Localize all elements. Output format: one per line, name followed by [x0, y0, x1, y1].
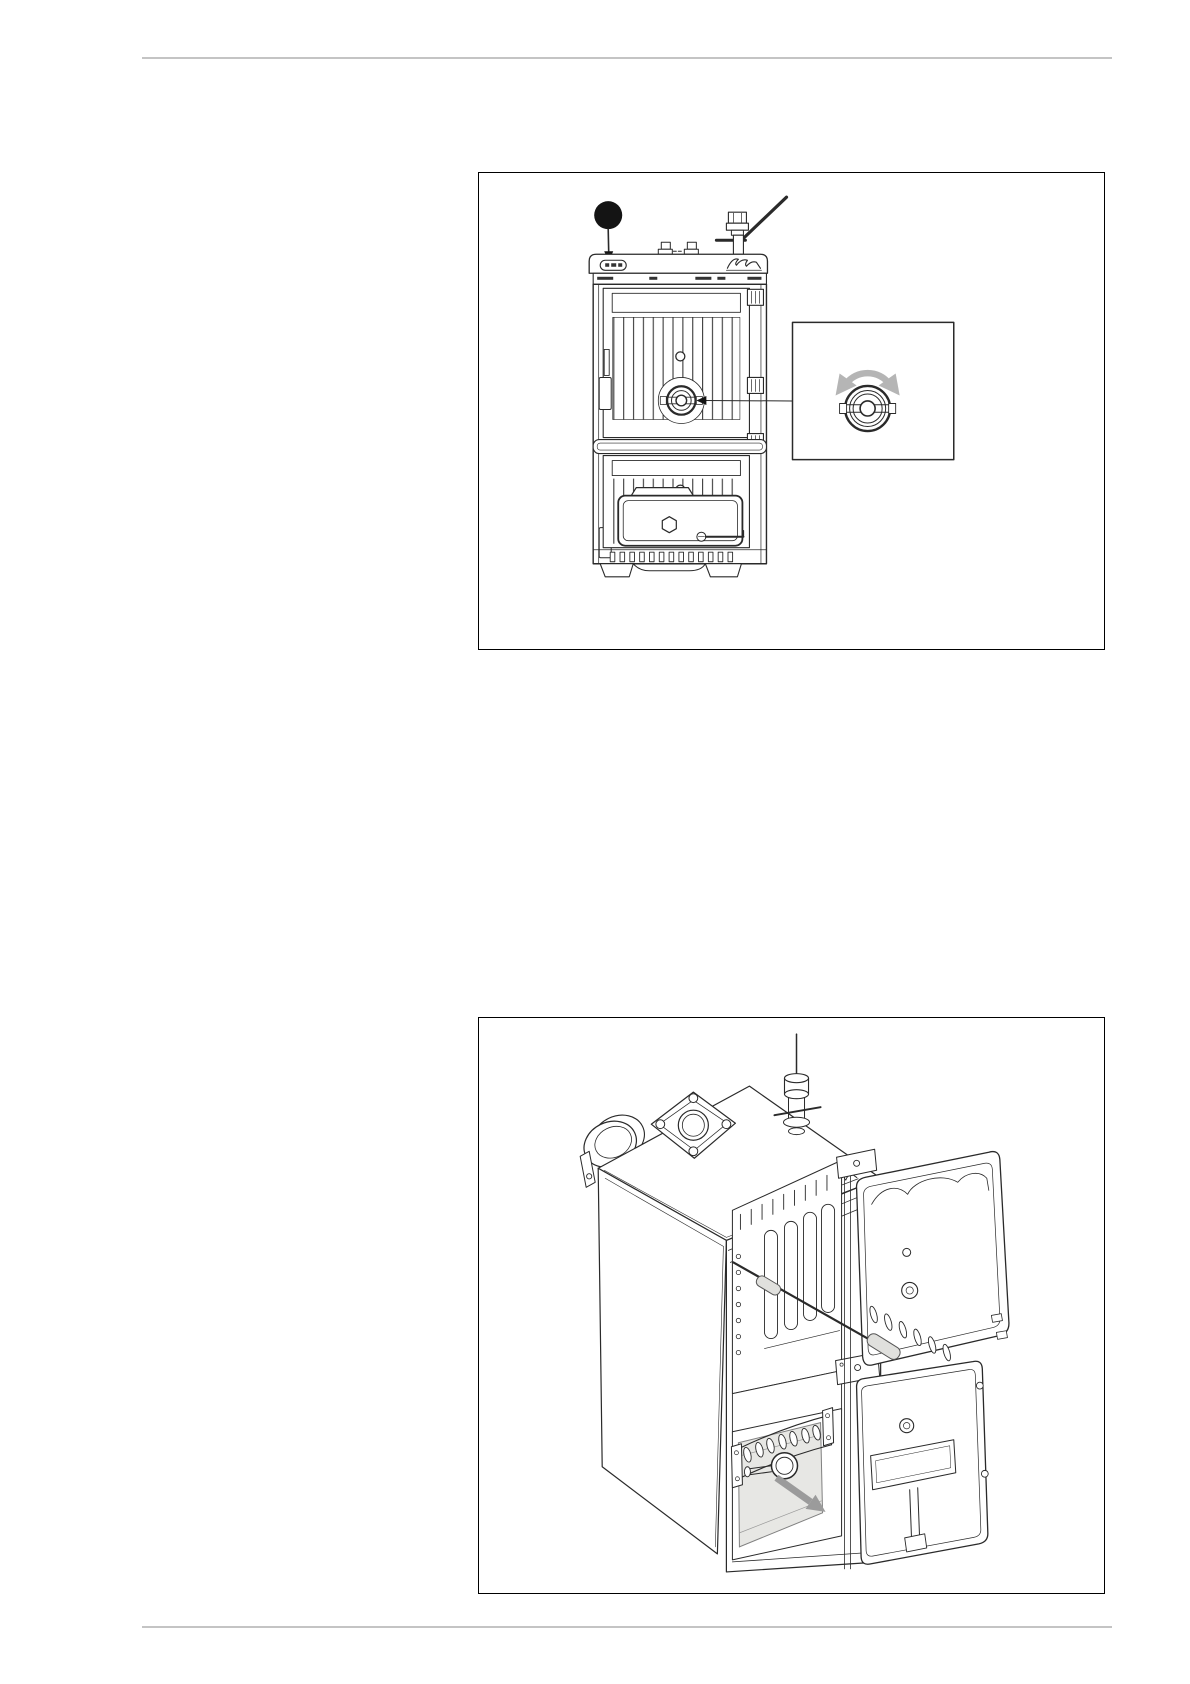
feet — [600, 564, 741, 577]
figure-2-illustration — [479, 1018, 1104, 1593]
manual-page — [0, 0, 1190, 1684]
door-hole — [903, 1248, 911, 1256]
top-band — [593, 273, 766, 284]
safety-valve-lever — [742, 197, 786, 239]
figure-1-illustration — [479, 173, 1104, 649]
sight-hole — [676, 352, 685, 361]
upper-door — [603, 288, 749, 437]
lower-door-open — [857, 1361, 989, 1564]
door-boss — [900, 1419, 914, 1433]
door-divider-bar — [593, 440, 766, 454]
bottom-divider — [142, 1626, 1112, 1628]
knob-detail-inset — [793, 322, 954, 459]
safety-valve — [716, 197, 786, 254]
upper-door-open — [857, 1152, 1009, 1366]
top-connection-studs — [658, 242, 698, 254]
figure-2-frame — [478, 1017, 1105, 1594]
lower-door — [603, 456, 749, 548]
control-panel — [589, 254, 767, 273]
callout-balloon — [594, 201, 622, 262]
door-boss — [902, 1282, 918, 1298]
ash-door — [618, 488, 743, 546]
figure-1-frame — [478, 172, 1105, 650]
lower-chamber — [731, 1408, 841, 1560]
hex-knob — [662, 517, 676, 533]
top-divider — [142, 57, 1112, 59]
